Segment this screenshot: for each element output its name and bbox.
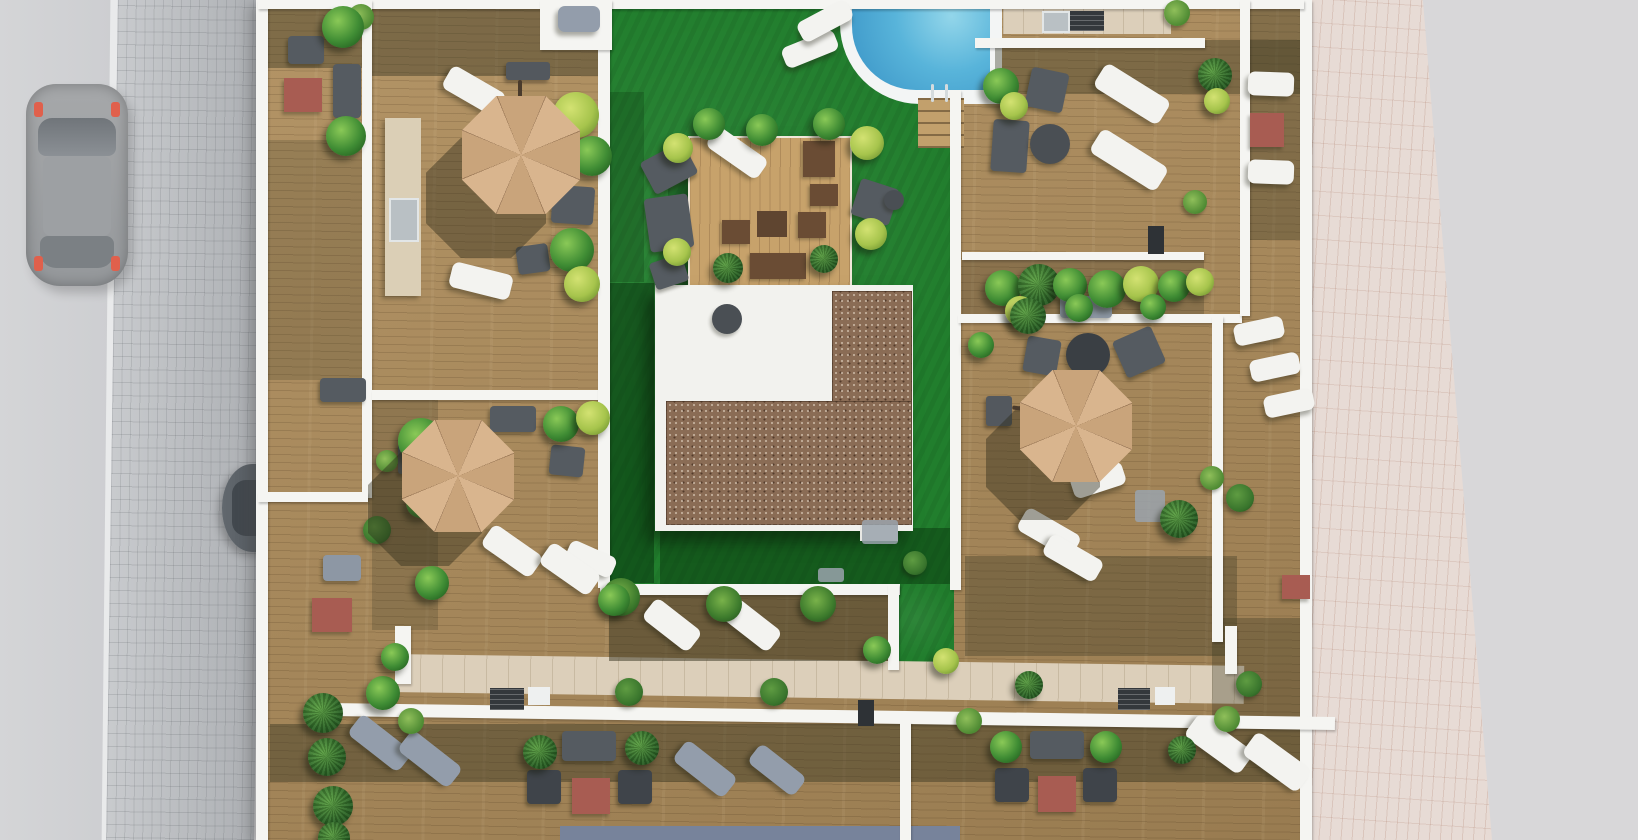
bbq-grill — [1118, 688, 1150, 710]
shrub — [903, 551, 927, 575]
shrub — [855, 218, 887, 250]
pergola-seat — [810, 184, 838, 206]
gravel-roof-lower — [666, 401, 912, 525]
shrub — [713, 253, 743, 283]
terracotta-coffee-table — [1038, 776, 1076, 812]
shrub — [1088, 270, 1126, 308]
cast-shadow — [965, 556, 1237, 656]
shrub — [1140, 294, 1166, 320]
parasol-umbrella — [1020, 370, 1132, 482]
wooden-table — [757, 211, 787, 237]
pergola-seat — [722, 220, 750, 244]
outdoor-armchair — [288, 36, 324, 64]
planter-box — [1148, 226, 1164, 254]
potted-plant — [706, 586, 742, 622]
outdoor-armchair — [995, 768, 1029, 802]
round-side-table — [712, 304, 742, 334]
sun-lounger — [1248, 71, 1295, 97]
shrub — [1010, 298, 1046, 334]
cast-shadow — [258, 140, 364, 380]
shrub — [576, 401, 610, 435]
shrub — [1160, 500, 1198, 538]
shrub — [1186, 268, 1214, 296]
divider-wall — [258, 492, 368, 502]
car-light — [111, 256, 120, 271]
shrub — [415, 566, 449, 600]
shrub — [990, 731, 1022, 763]
car-roof — [43, 156, 111, 236]
planter-box — [858, 700, 874, 726]
outdoor-rug — [818, 568, 844, 582]
counter-sink — [1042, 11, 1070, 33]
pool-ladder — [945, 84, 948, 102]
outdoor-armchair — [1024, 66, 1069, 113]
shrub — [863, 636, 891, 664]
divider-wall — [1300, 0, 1312, 840]
shrub — [625, 731, 659, 765]
shrub — [1226, 484, 1254, 512]
shrub — [968, 332, 994, 358]
shrub — [523, 735, 557, 769]
flower-pot — [1214, 706, 1240, 732]
cobblestone-sidewalk — [106, 0, 266, 840]
shrub — [1158, 270, 1190, 302]
flower-pot — [956, 708, 982, 734]
shrub — [366, 676, 400, 710]
divider-wall — [950, 90, 961, 590]
outdoor-armchair — [1083, 768, 1117, 802]
shrub — [813, 108, 845, 140]
shrub — [663, 238, 691, 266]
shrub — [1000, 92, 1028, 120]
lawn-shadow — [608, 92, 644, 282]
outdoor-armchair — [618, 770, 652, 804]
counter-sink — [389, 198, 419, 242]
shrub — [381, 643, 409, 671]
shrub — [326, 116, 366, 156]
outdoor-rug — [862, 520, 898, 544]
divider-wall — [362, 0, 372, 498]
gravel-roof-upper — [832, 291, 912, 406]
car-light — [34, 256, 43, 271]
terracotta-coffee-table — [284, 78, 322, 112]
divider-wall — [256, 0, 268, 840]
pergola-seat — [798, 212, 826, 238]
shrub — [564, 266, 600, 302]
pergola-seat — [803, 141, 835, 177]
prep-board — [528, 687, 550, 705]
divider-wall — [600, 584, 900, 595]
potted-plant — [800, 586, 836, 622]
shrub — [1168, 736, 1196, 764]
divider-wall — [962, 252, 1204, 260]
prep-board — [1155, 687, 1175, 705]
terracotta-coffee-table — [572, 778, 610, 814]
car-rear-window — [40, 236, 114, 268]
shrub — [308, 738, 346, 776]
car-light — [34, 102, 43, 117]
divider-wall — [258, 0, 1304, 9]
divider-wall — [1225, 626, 1237, 674]
divider-wall — [1240, 0, 1250, 316]
terracotta-coffee-table — [1250, 113, 1284, 147]
outdoor-sofa — [320, 378, 366, 402]
parked-car-street — [26, 84, 128, 286]
bbq-grill — [490, 688, 524, 710]
outdoor-sofa — [333, 64, 361, 118]
sun-lounger — [558, 6, 600, 32]
terracotta-coffee-table — [1282, 575, 1310, 599]
divider-wall — [888, 584, 899, 670]
outdoor-sofa — [1030, 731, 1084, 759]
outdoor-sofa — [490, 406, 536, 432]
round-side-table — [1030, 124, 1070, 164]
outdoor-bench — [323, 555, 361, 581]
shrub — [322, 6, 364, 48]
sun-lounger — [1248, 159, 1295, 185]
shrub — [746, 114, 778, 146]
flower-pot — [398, 708, 424, 734]
divider-wall — [372, 390, 608, 400]
divider-wall — [900, 722, 911, 840]
shrub — [303, 693, 343, 733]
shrub — [615, 678, 643, 706]
shrub — [663, 133, 693, 163]
shrub — [933, 648, 959, 674]
rooftop-aerial-render: Aerial 3D architectural rendering of a r… — [0, 0, 1638, 840]
pergola-seat — [750, 253, 806, 279]
flower-pot — [1200, 466, 1224, 490]
shrub — [1015, 671, 1043, 699]
shrub — [693, 108, 725, 140]
car-windshield — [38, 118, 116, 156]
shrub — [543, 406, 579, 442]
shrub — [1065, 294, 1093, 322]
bbq-grill — [1070, 11, 1104, 31]
car-light — [111, 102, 120, 117]
shrub — [313, 786, 353, 826]
shrub — [810, 245, 838, 273]
shrub — [550, 228, 594, 272]
parasol-umbrella — [462, 96, 580, 214]
outdoor-sofa — [990, 119, 1030, 173]
outdoor-armchair — [549, 444, 586, 477]
outdoor-sofa — [562, 731, 616, 761]
shrub — [1198, 58, 1232, 92]
outdoor-armchair — [527, 770, 561, 804]
divider-wall — [975, 38, 1205, 48]
shrub — [598, 584, 630, 616]
shrub — [1090, 731, 1122, 763]
shrub — [1204, 88, 1230, 114]
shrub — [850, 126, 884, 160]
pool-ladder — [931, 84, 934, 102]
divider-wall — [598, 0, 610, 588]
flower-pot — [1164, 0, 1190, 26]
terracotta-coffee-table — [312, 598, 352, 632]
round-side-table — [884, 190, 904, 210]
shrub — [760, 678, 788, 706]
shrub — [1236, 671, 1262, 697]
parasol-umbrella — [402, 420, 514, 532]
lawn-shadow — [608, 283, 654, 583]
umbrella-base — [506, 62, 550, 80]
flower-pot — [1183, 190, 1207, 214]
